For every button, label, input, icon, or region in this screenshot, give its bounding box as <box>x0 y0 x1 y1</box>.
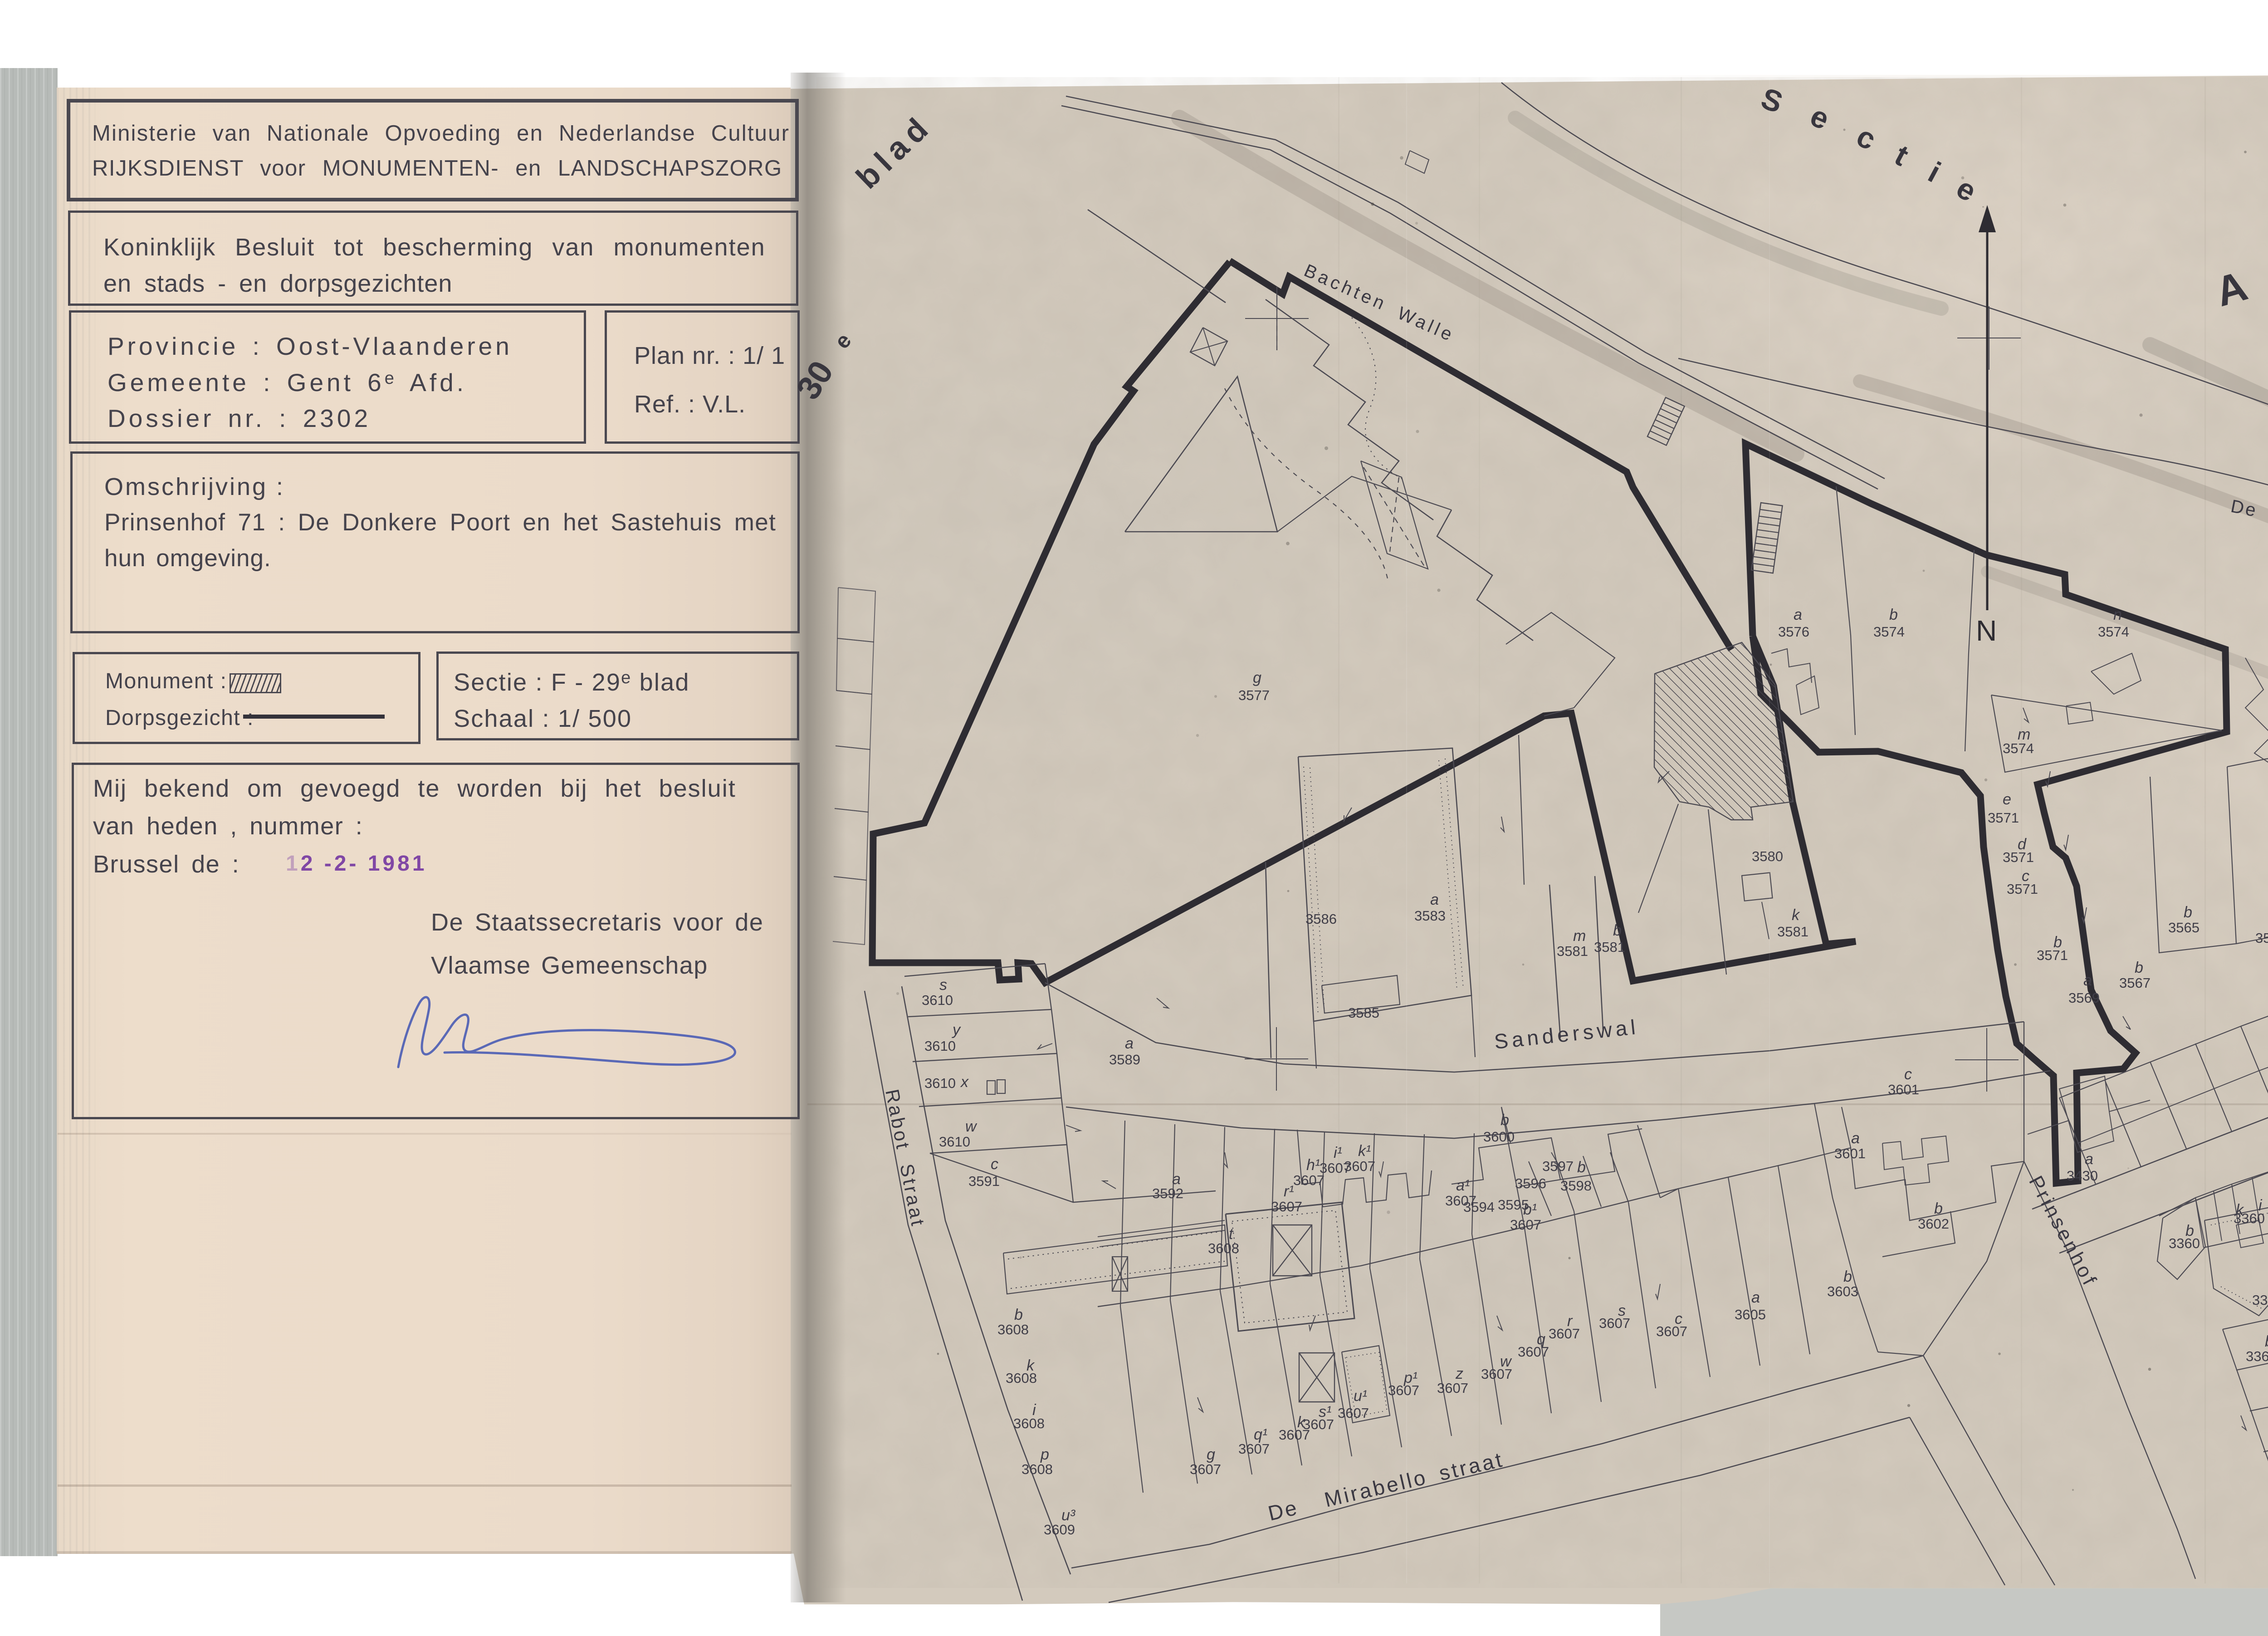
svg-text:3607: 3607 <box>1599 1315 1630 1331</box>
svg-text:3569: 3569 <box>2068 990 2100 1006</box>
svg-text:3586: 3586 <box>1305 911 1337 927</box>
svg-text:3600: 3600 <box>1483 1129 1515 1145</box>
svg-text:b: b <box>2265 1333 2268 1350</box>
svg-text:3607: 3607 <box>1190 1461 1221 1477</box>
svg-text:3585: 3585 <box>1348 1005 1379 1021</box>
svg-text:3361: 3361 <box>2246 1348 2268 1364</box>
svg-text:3596: 3596 <box>1515 1176 1546 1191</box>
svg-text:3571: 3571 <box>2003 849 2034 865</box>
svg-text:i¹: i¹ <box>1334 1144 1342 1161</box>
svg-text:3581: 3581 <box>1557 943 1588 959</box>
svg-text:3610: 3610 <box>939 1134 970 1150</box>
svg-text:a¹: a¹ <box>1456 1177 1470 1194</box>
svg-text:c: c <box>1904 1066 1912 1083</box>
svg-text:3607: 3607 <box>1271 1199 1302 1215</box>
svg-text:b: b <box>1934 1200 1943 1217</box>
svg-text:3608: 3608 <box>1208 1240 1239 1256</box>
svg-text:b¹: b¹ <box>1523 1201 1537 1218</box>
svg-text:3567: 3567 <box>2119 975 2151 991</box>
svg-text:3360: 3360 <box>2252 1292 2268 1308</box>
svg-text:3574: 3574 <box>1873 624 1905 640</box>
svg-text:3607: 3607 <box>1388 1382 1419 1398</box>
svg-text:N: N <box>1976 614 1997 647</box>
svg-text:a: a <box>1794 606 1802 623</box>
svg-text:3607: 3607 <box>1238 1441 1270 1457</box>
svg-text:a: a <box>1851 1130 1860 1147</box>
svg-text:3608: 3608 <box>1022 1461 1053 1477</box>
svg-text:3589: 3589 <box>1109 1052 1140 1068</box>
svg-text:a: a <box>2083 972 2092 989</box>
svg-text:3571: 3571 <box>2037 947 2068 963</box>
svg-text:3608: 3608 <box>1006 1370 1037 1386</box>
svg-text:3580: 3580 <box>1752 848 1783 864</box>
svg-text:b: b <box>1501 1112 1509 1129</box>
svg-text:w: w <box>965 1118 978 1135</box>
svg-text:3430: 3430 <box>2067 1168 2098 1184</box>
svg-text:b: b <box>1014 1306 1023 1323</box>
svg-text:b: b <box>1577 1159 1586 1176</box>
svg-text:3608: 3608 <box>997 1322 1029 1337</box>
svg-text:3592: 3592 <box>1152 1185 1183 1201</box>
svg-text:3360: 3360 <box>2169 1235 2200 1251</box>
svg-text:3597: 3597 <box>1542 1158 1574 1174</box>
svg-text:h¹: h¹ <box>1306 1156 1320 1174</box>
svg-text:e: e <box>2003 791 2011 808</box>
svg-text:3598: 3598 <box>1560 1178 1592 1194</box>
svg-text:3607: 3607 <box>1549 1326 1580 1342</box>
svg-text:b: b <box>1613 922 1622 939</box>
svg-text:r¹: r¹ <box>1284 1183 1294 1200</box>
svg-text:3574: 3574 <box>2098 624 2129 640</box>
svg-text:3607: 3607 <box>1338 1405 1369 1421</box>
svg-text:g: g <box>1253 669 1261 686</box>
svg-text:c: c <box>991 1156 998 1173</box>
svg-text:3565: 3565 <box>2168 920 2200 936</box>
svg-text:k¹: k¹ <box>1358 1142 1371 1160</box>
svg-text:b: b <box>1843 1268 1852 1285</box>
svg-text:3610: 3610 <box>924 1075 956 1091</box>
svg-text:3607: 3607 <box>1303 1416 1334 1432</box>
svg-text:a: a <box>1125 1035 1134 1052</box>
svg-text:3601: 3601 <box>1834 1146 1866 1161</box>
svg-text:3591: 3591 <box>968 1173 1000 1189</box>
svg-text:s: s <box>939 976 947 994</box>
svg-text:y: y <box>952 1021 961 1038</box>
svg-text:3577: 3577 <box>1238 687 1270 703</box>
svg-text:x: x <box>960 1073 969 1091</box>
svg-text:3607: 3607 <box>1437 1380 1468 1396</box>
svg-text:3607: 3607 <box>1656 1323 1687 1339</box>
svg-text:a: a <box>1430 891 1439 908</box>
svg-text:3583: 3583 <box>1414 908 1446 924</box>
svg-text:3576: 3576 <box>1778 624 1809 640</box>
svg-text:3607: 3607 <box>1344 1158 1375 1174</box>
svg-text:3608: 3608 <box>1013 1416 1045 1431</box>
svg-text:3607: 3607 <box>1445 1193 1476 1209</box>
svg-text:b: b <box>1889 606 1898 623</box>
svg-text:3601: 3601 <box>1888 1082 1919 1097</box>
svg-text:3607: 3607 <box>1518 1344 1549 1360</box>
svg-text:3581: 3581 <box>1777 924 1809 940</box>
svg-text:g: g <box>1207 1446 1215 1463</box>
svg-text:b: b <box>2135 959 2143 976</box>
svg-text:k: k <box>1792 906 1800 924</box>
svg-text:b: b <box>2184 904 2192 921</box>
svg-text:3602: 3602 <box>1918 1216 1949 1232</box>
svg-text:3610: 3610 <box>922 992 953 1008</box>
svg-text:m: m <box>1573 927 1586 945</box>
svg-text:p: p <box>1040 1446 1049 1463</box>
svg-text:3574: 3574 <box>2003 740 2034 756</box>
svg-text:3581: 3581 <box>1594 939 1625 955</box>
svg-text:a: a <box>1751 1289 1760 1306</box>
svg-text:3607: 3607 <box>1510 1217 1541 1233</box>
svg-text:3605: 3605 <box>1735 1307 1766 1323</box>
svg-text:n: n <box>2113 606 2122 623</box>
svg-text:3607: 3607 <box>1481 1366 1512 1382</box>
svg-text:3610: 3610 <box>924 1038 956 1054</box>
svg-text:3563: 3563 <box>2255 930 2268 946</box>
svg-text:3571: 3571 <box>1988 810 2019 826</box>
svg-text:3609: 3609 <box>1044 1522 1075 1538</box>
svg-text:3360: 3360 <box>2234 1210 2265 1226</box>
svg-text:3603: 3603 <box>1827 1283 1858 1299</box>
svg-text:u¹: u¹ <box>1354 1387 1367 1405</box>
svg-text:3571: 3571 <box>2007 881 2038 897</box>
svg-text:a: a <box>2085 1151 2093 1168</box>
